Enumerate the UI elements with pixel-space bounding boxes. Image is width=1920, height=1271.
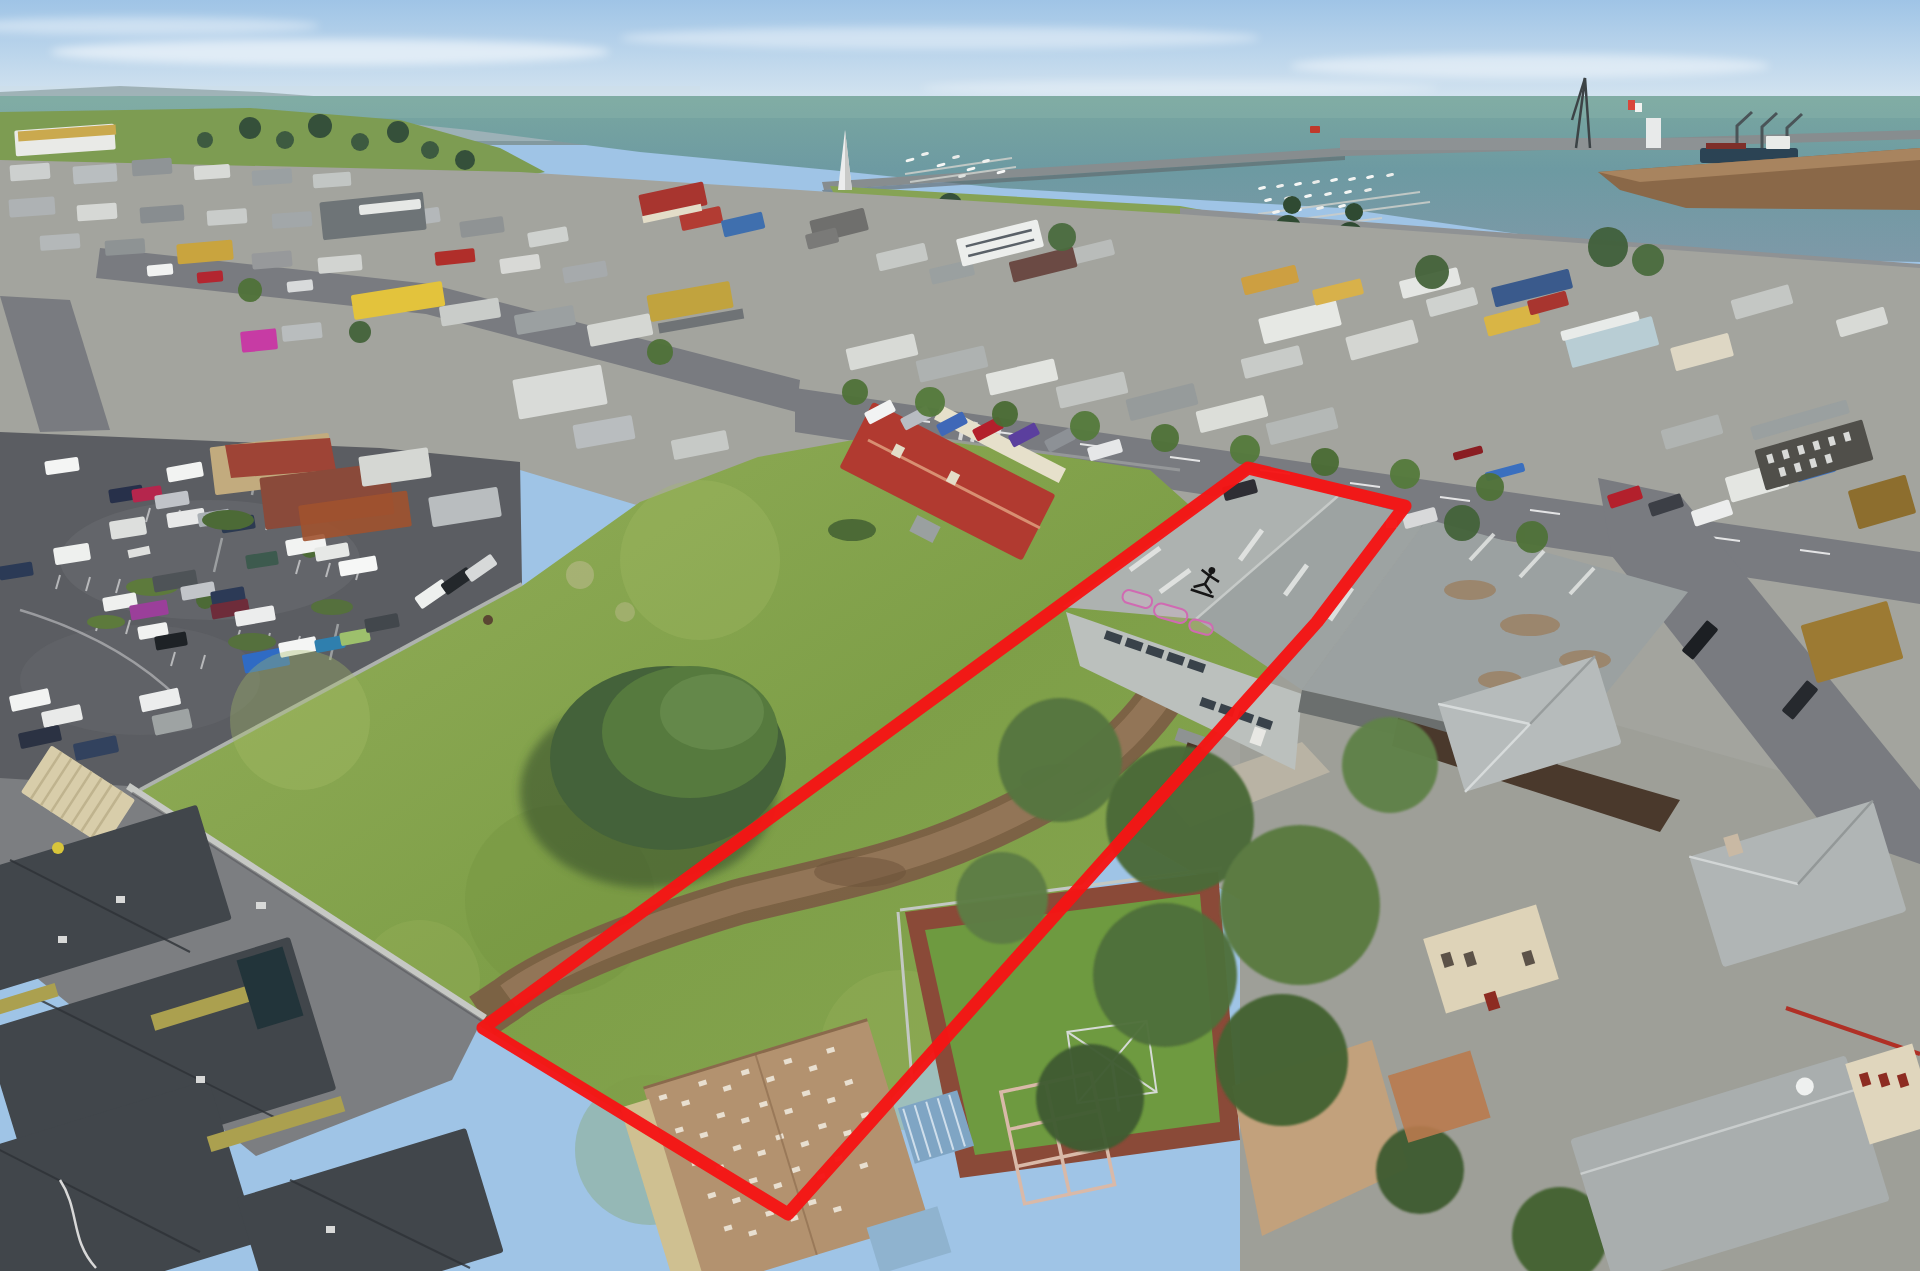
worker-hi-vis (52, 842, 64, 854)
silo-building (1646, 118, 1661, 148)
aerial-property-photo (0, 0, 1920, 1271)
stump (483, 615, 493, 625)
magenta-shop (240, 328, 278, 353)
photo-canvas (0, 0, 1920, 1271)
pilot-boat (1310, 126, 1320, 133)
